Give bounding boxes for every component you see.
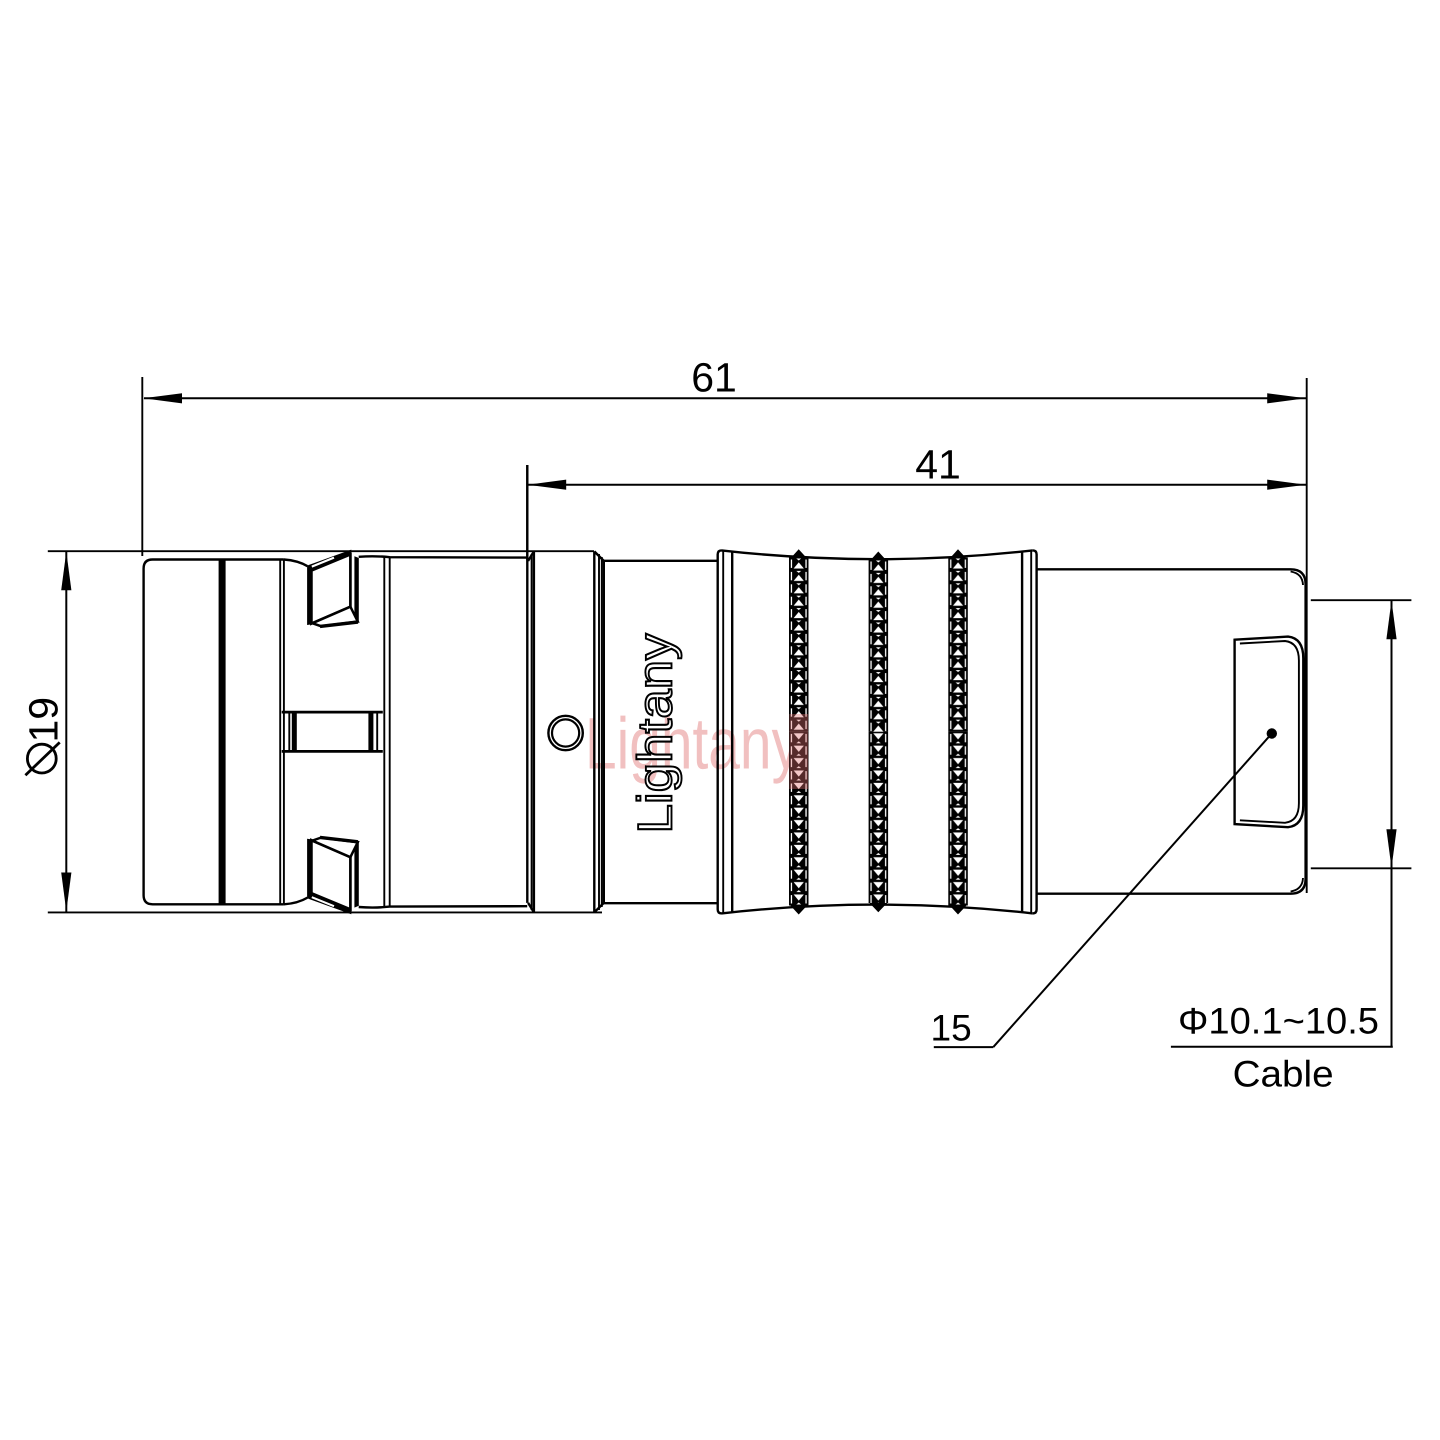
svg-text:61: 61 — [691, 355, 737, 401]
svg-text:Lightany: Lightany — [585, 704, 800, 785]
svg-text:15: 15 — [931, 1008, 972, 1049]
svg-text:Cable: Cable — [1233, 1054, 1334, 1095]
svg-text:41: 41 — [915, 442, 961, 488]
svg-text:19: 19 — [21, 697, 67, 743]
svg-text:Φ10.1~10.5: Φ10.1~10.5 — [1178, 1001, 1379, 1042]
svg-text:Lightany: Lightany — [629, 633, 683, 834]
